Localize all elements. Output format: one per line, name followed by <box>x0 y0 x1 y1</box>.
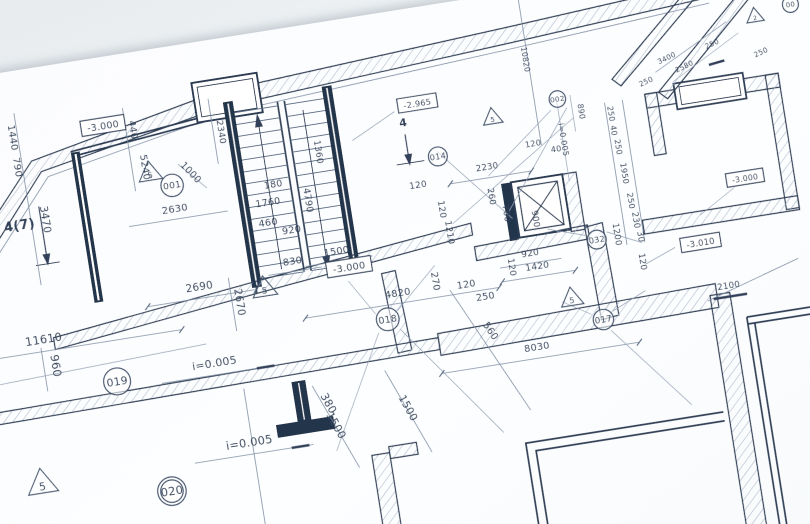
blueprint-photo: 1440790347044052402340263010002690267011… <box>0 0 810 524</box>
dimension-label: 40 <box>608 125 619 137</box>
floor-plan-svg: 1440790347044052402340263010002690267011… <box>0 0 810 524</box>
room-marker-label: 00 <box>785 0 795 9</box>
dimension-label: 30 <box>634 230 646 243</box>
paper-group: 1440790347044052402340263010002690267011… <box>0 0 810 524</box>
